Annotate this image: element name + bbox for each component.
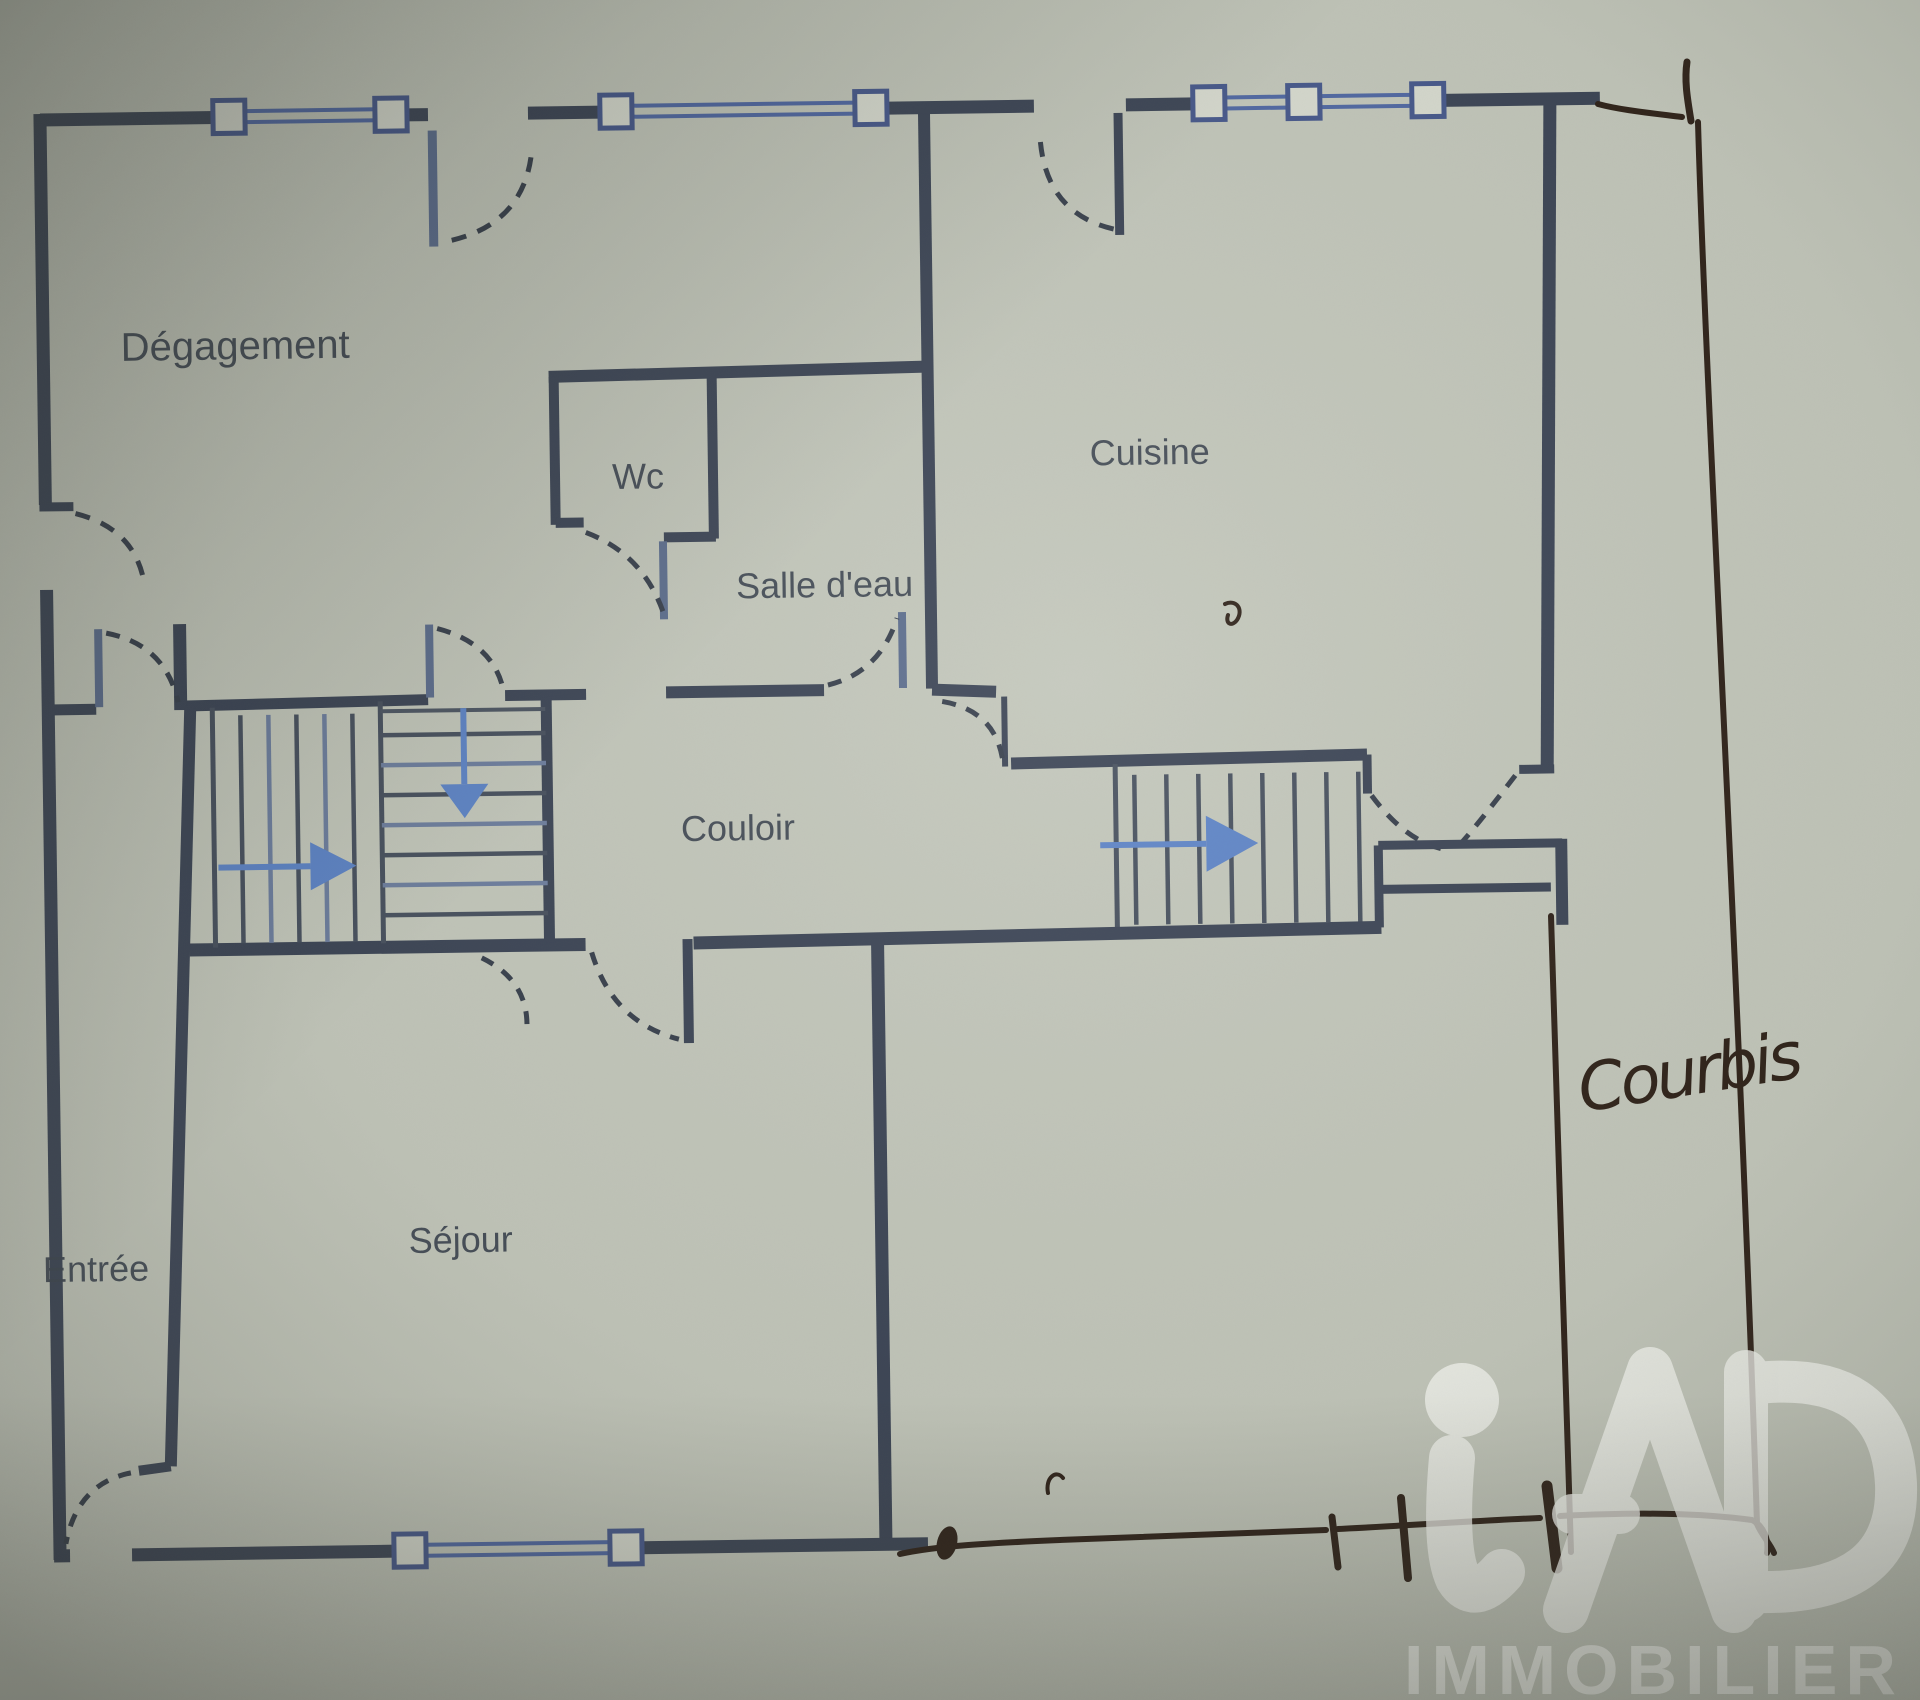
floor-plan-canvas: Dégagement Wc Salle d'eau Cuisine Couloi… (0, 0, 1920, 1700)
paper-grain (0, 0, 1920, 1700)
floor-plan-photo: Dégagement Wc Salle d'eau Cuisine Couloi… (0, 0, 1920, 1700)
